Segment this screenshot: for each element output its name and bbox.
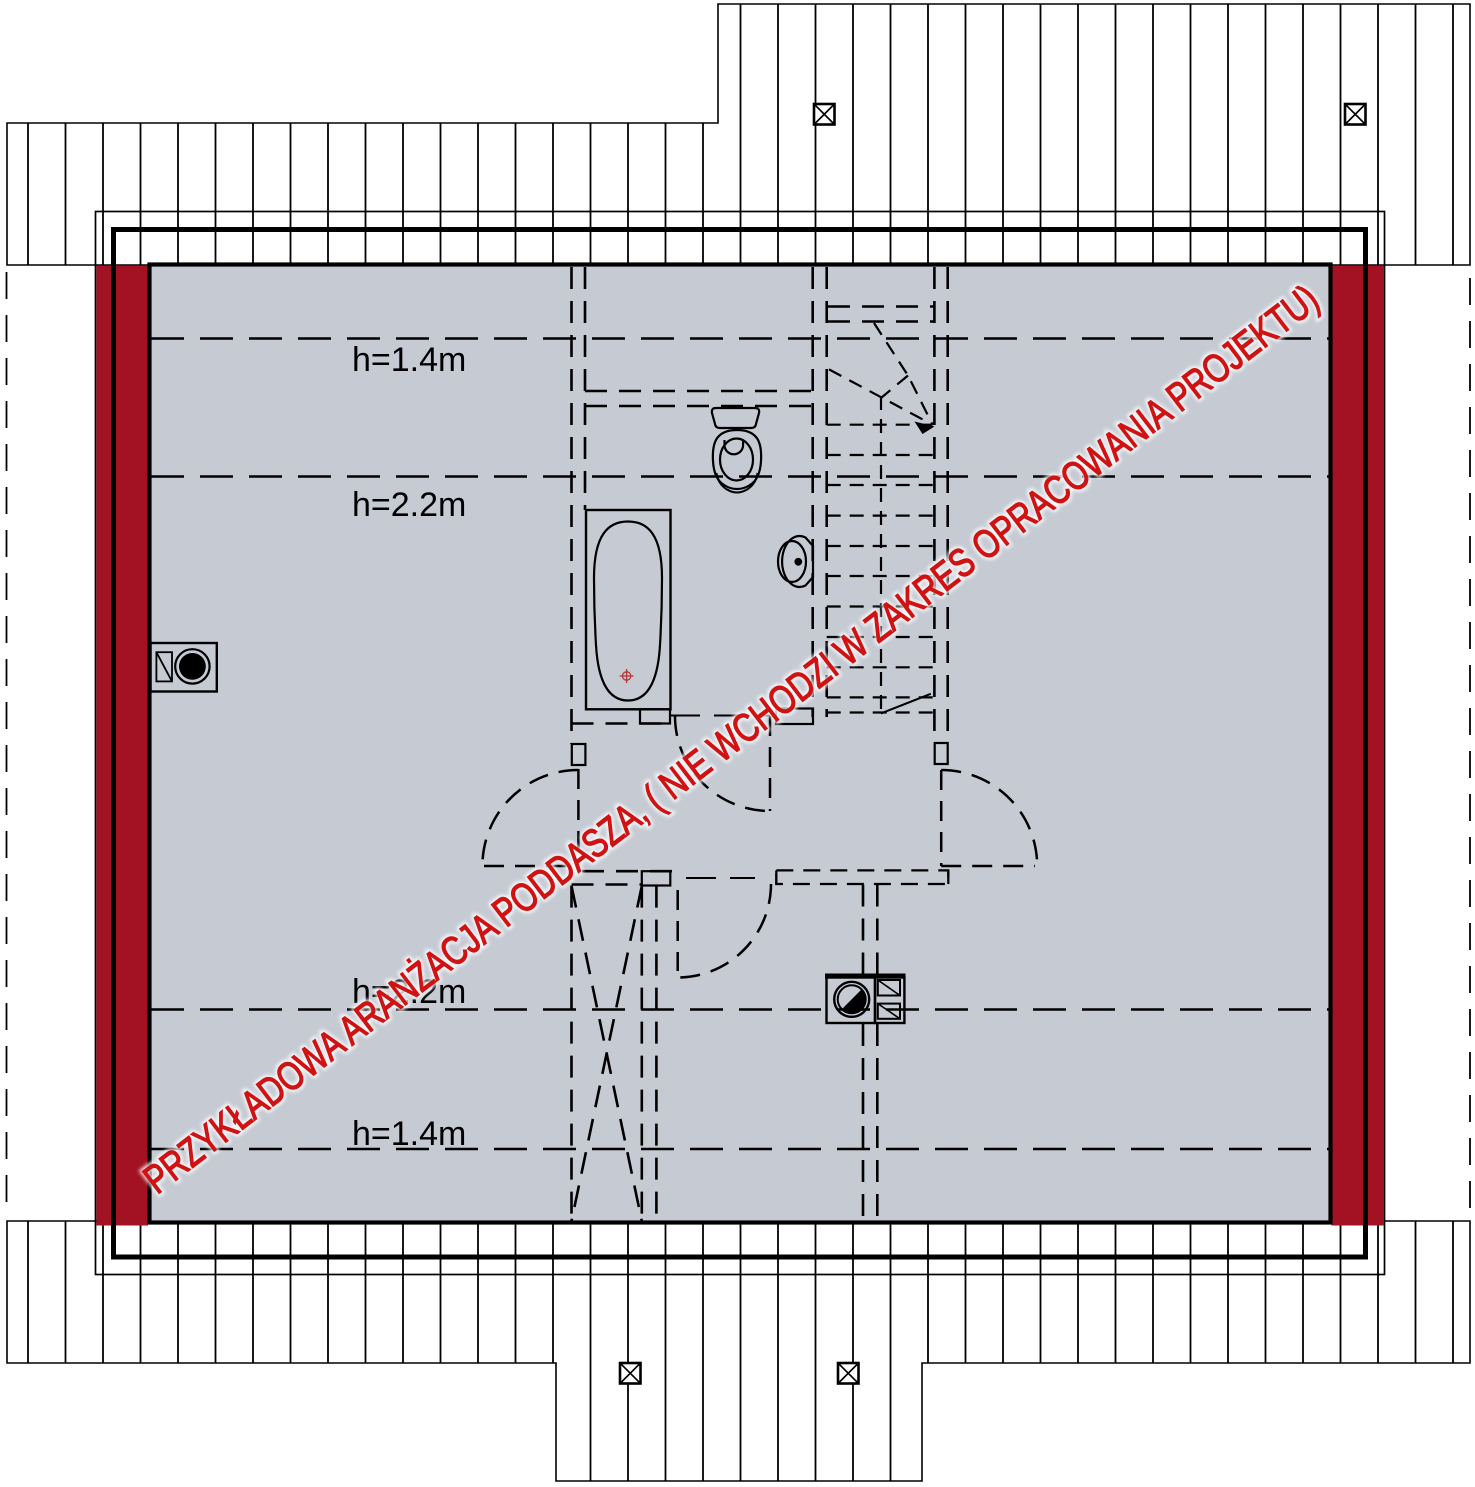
svg-text:h=1.4m: h=1.4m	[352, 1115, 466, 1153]
svg-text:h=2.2m: h=2.2m	[352, 486, 466, 524]
svg-text:h=1.4m: h=1.4m	[352, 341, 466, 379]
